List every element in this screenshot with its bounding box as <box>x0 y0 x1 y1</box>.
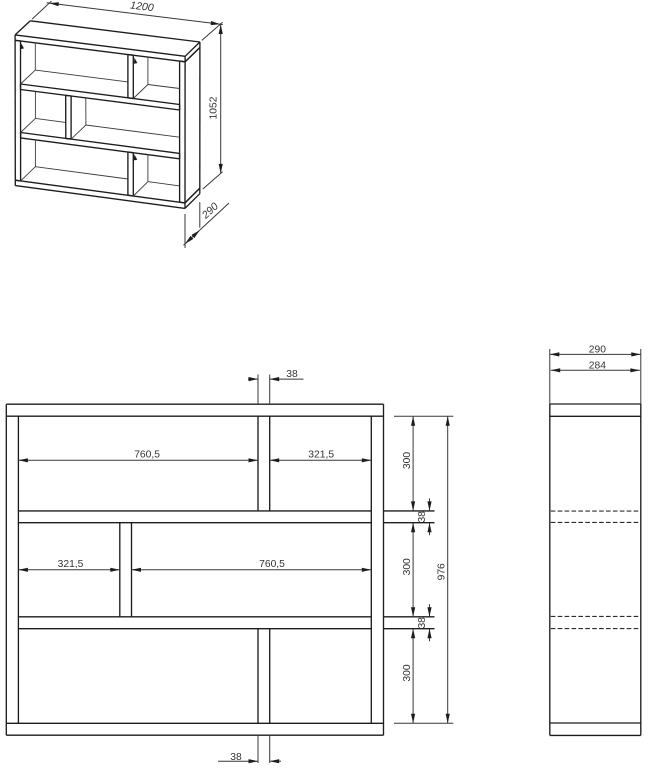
svg-text:300: 300 <box>402 558 413 575</box>
svg-text:321,5: 321,5 <box>308 450 334 461</box>
svg-text:976: 976 <box>437 563 448 580</box>
svg-text:290: 290 <box>589 344 606 355</box>
svg-text:760,5: 760,5 <box>134 450 160 461</box>
svg-text:38: 38 <box>286 369 298 380</box>
svg-text:760,5: 760,5 <box>259 559 285 570</box>
svg-text:38: 38 <box>417 511 428 523</box>
svg-text:300: 300 <box>402 452 413 469</box>
svg-text:284: 284 <box>589 360 606 371</box>
svg-text:300: 300 <box>402 664 413 681</box>
svg-text:38: 38 <box>230 752 242 763</box>
svg-text:38: 38 <box>417 617 428 629</box>
svg-text:1052: 1052 <box>209 96 220 119</box>
svg-text:321,5: 321,5 <box>58 559 84 570</box>
